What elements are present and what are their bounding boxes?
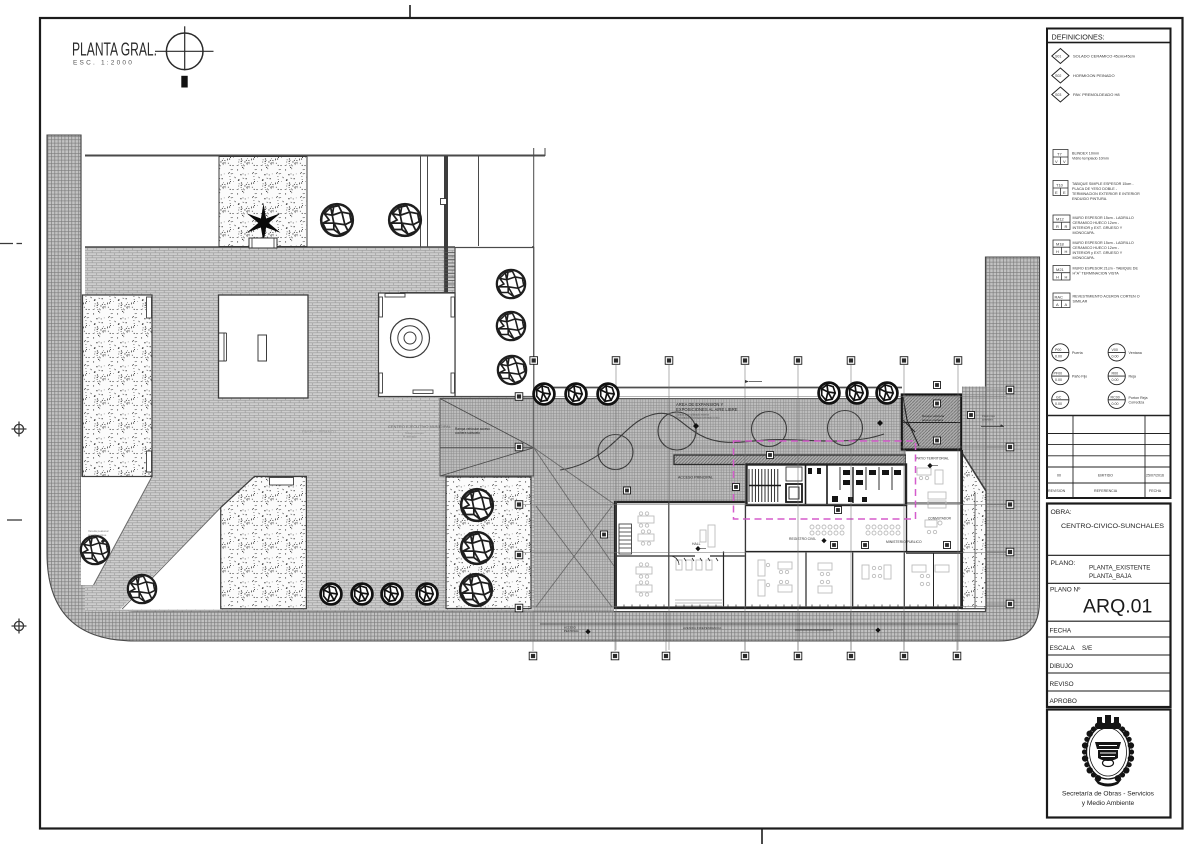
svg-text:0.00: 0.00 [1055,355,1062,359]
svg-text:PLANTA GRAL.: PLANTA GRAL. [72,40,157,60]
svg-text:CENTRO-CIVICO-SUNCHALES: CENTRO-CIVICO-SUNCHALES [1061,523,1165,530]
svg-text:PAV. PREMOLDEADO H8: PAV. PREMOLDEADO H8 [1073,92,1120,97]
svg-text:GC: GC [1056,395,1062,399]
svg-text:0.00: 0.00 [1112,355,1119,359]
svg-text:A: A [1065,302,1068,307]
svg-text:MURO ESPESOR 15cm - LADRILLO: MURO ESPESOR 15cm - LADRILLO [1073,241,1134,245]
svg-text:PEATONAL: PEATONAL [564,629,579,633]
svg-text:E: E [1063,190,1066,195]
svg-text:PLANO Nº: PLANO Nº [1050,587,1081,594]
svg-text:CERAMICO HUECO 12cm -: CERAMICO HUECO 12cm - [1073,246,1120,250]
svg-text:ENDUIDO PINTURA.: ENDUIDO PINTURA. [1072,197,1107,201]
svg-text:Corrediza: Corrediza [1129,401,1145,405]
svg-text:ESC. 1:2000: ESC. 1:2000 [73,60,134,67]
svg-text:H: H [1065,275,1068,280]
svg-text:RAC: RAC [1055,295,1064,300]
svg-text:REVISION: REVISION [1048,489,1066,493]
svg-text:OBRA:: OBRA: [1051,509,1072,516]
svg-text:INTERIOR y EXT. GRUESO Y: INTERIOR y EXT. GRUESO Y [1073,226,1123,230]
svg-text:R: R [1056,224,1059,229]
svg-text:H. peinado: H. peinado [403,435,417,439]
svg-text:S02: S02 [1055,74,1061,78]
svg-text:REVESTIMIENTO ACERON CORTEN O: REVESTIMIENTO ACERON CORTEN O [1073,295,1140,299]
svg-text:PATIO TERRITORIAL: PATIO TERRITORIAL [916,457,949,461]
svg-text:Puerta: Puerta [1072,351,1083,355]
svg-text:MURO ESPESOR 15cm - LADRILLO: MURO ESPESOR 15cm - LADRILLO [1073,216,1134,220]
svg-text:0.00: 0.00 [1112,402,1119,406]
svg-text:SIMILAR: SIMILAR [1073,300,1088,304]
svg-text:DIBUJO: DIBUJO [1050,663,1073,670]
svg-text:M21: M21 [1056,267,1065,272]
svg-text:PLANTA_BAJA: PLANTA_BAJA [1089,573,1132,580]
svg-text:Terminacion Hormigon peinado i: Terminacion Hormigon peinado in situ [676,416,720,420]
svg-text:Ventana: Ventana [1129,351,1142,355]
svg-text:0.00: 0.00 [1055,402,1062,406]
svg-text:MURO ESPESOR 21cm - TABIQUE DE: MURO ESPESOR 21cm - TABIQUE DE [1073,267,1139,271]
svg-text:S01: S01 [1055,55,1061,59]
svg-text:FECHA: FECHA [1149,489,1162,493]
svg-text:Secretaría de Obras - Servicio: Secretaría de Obras - Servicios [1062,791,1155,798]
svg-text:Paño Fijo: Paño Fijo [1072,375,1087,379]
svg-text:y Medio Ambiente: y Medio Ambiente [1082,800,1135,807]
svg-text:M12: M12 [1056,217,1065,222]
svg-text:PLACA DE YESO DOBLE -: PLACA DE YESO DOBLE - [1072,187,1118,191]
svg-text:PASEO URBANO: PASEO URBANO [302,429,334,434]
svg-text:TABIQUE SIMPLE ESPESOR 15cm -: TABIQUE SIMPLE ESPESOR 15cm - [1072,182,1134,186]
svg-text:T10: T10 [1056,183,1064,188]
svg-text:A: A [1056,302,1059,307]
svg-text:acceso cochera: acceso cochera [922,418,943,422]
svg-text:SOLADO CERAMICO 45cmx45cm: SOLADO CERAMICO 45cmx45cm [1073,54,1136,59]
svg-text:Vidrio templado 10mm: Vidrio templado 10mm [1072,157,1109,161]
svg-text:FECHA: FECHA [1050,628,1072,635]
svg-text:PF00: PF00 [1054,372,1063,376]
svg-text:CENTRO EJECUTIVO MUNICIPAL: CENTRO EJECUTIVO MUNICIPAL [388,424,452,429]
svg-text:HORMIGON PEINADO: HORMIGON PEINADO [1073,73,1115,78]
svg-text:corrediza: corrediza [982,417,993,421]
svg-text:E: E [1055,190,1058,195]
svg-text:RC00: RC00 [1111,395,1120,399]
svg-text:25/07/2016: 25/07/2016 [1146,474,1164,478]
svg-text:MONOCAPA.: MONOCAPA. [1073,231,1095,235]
svg-text:ACCESO PRINCIPAL: ACCESO PRINCIPAL [678,476,713,480]
svg-text:REGISTRO CIVIL: REGISTRO CIVIL [789,537,816,541]
svg-text:REFERENCIA: REFERENCIA [1094,489,1118,493]
svg-text:Porton reja: Porton reja [982,414,995,418]
svg-text:EMITIDO: EMITIDO [1098,474,1113,478]
svg-text:EXPOSICIONES AL AIRE LIBRE: EXPOSICIONES AL AIRE LIBRE [676,407,738,412]
svg-text:ARQ.01: ARQ.01 [1083,596,1152,618]
svg-text:PLANTA_EXISTENTE: PLANTA_EXISTENTE [1089,565,1150,572]
svg-text:ESCALA: ESCALA [1050,645,1076,652]
svg-text:APROBO: APROBO [1050,698,1077,705]
svg-text:P00: P00 [1055,348,1061,352]
svg-text:acceso parque: acceso parque [88,533,107,537]
svg-text:cochera subsuelo: cochera subsuelo [455,431,480,435]
svg-text:V: V [1055,159,1058,164]
svg-text:CONMUTADOR: CONMUTADOR [928,517,952,521]
svg-text:H: H [1065,249,1068,254]
svg-text:TERMINACION EXTERIOR E INTERIO: TERMINACION EXTERIOR E INTERIOR [1072,192,1140,196]
svg-text:S03: S03 [1055,93,1061,97]
svg-text:H: H [1056,275,1059,280]
svg-text:CERAMICO HUECO 12cm -: CERAMICO HUECO 12cm - [1073,221,1120,225]
svg-text:0.00: 0.00 [1055,378,1062,382]
svg-text:V: V [1063,159,1066,164]
svg-text:Reja: Reja [1129,375,1136,379]
svg-text:Porton Reja: Porton Reja [1129,396,1148,400]
svg-text:R00: R00 [1112,372,1119,376]
svg-text:AVENIDA INDEPENDENCIA: AVENIDA INDEPENDENCIA [683,626,721,630]
svg-text:H°A° TERMINACION VISTA: H°A° TERMINACION VISTA [1073,272,1120,276]
svg-text:R: R [1065,224,1068,229]
svg-text:0.00: 0.00 [1112,378,1119,382]
svg-text:INTERIOR y EXT. GRUESO Y: INTERIOR y EXT. GRUESO Y [1073,251,1123,255]
svg-text:MONOCAPA.: MONOCAPA. [1073,256,1095,260]
svg-text:S/E: S/E [1082,645,1092,652]
svg-text:REVISO: REVISO [1050,681,1074,688]
svg-text:BLINDEX 10mm: BLINDEX 10mm [1072,152,1099,156]
svg-text:HALL: HALL [692,542,701,546]
svg-text:PLANO:: PLANO: [1051,560,1076,567]
svg-text:T7: T7 [1057,152,1062,157]
svg-text:00: 00 [1057,474,1061,478]
svg-text:M18: M18 [1056,242,1065,247]
svg-text:DEFINICIONES:: DEFINICIONES: [1052,33,1105,42]
svg-text:V00: V00 [1112,348,1118,352]
svg-text:H: H [1056,249,1059,254]
